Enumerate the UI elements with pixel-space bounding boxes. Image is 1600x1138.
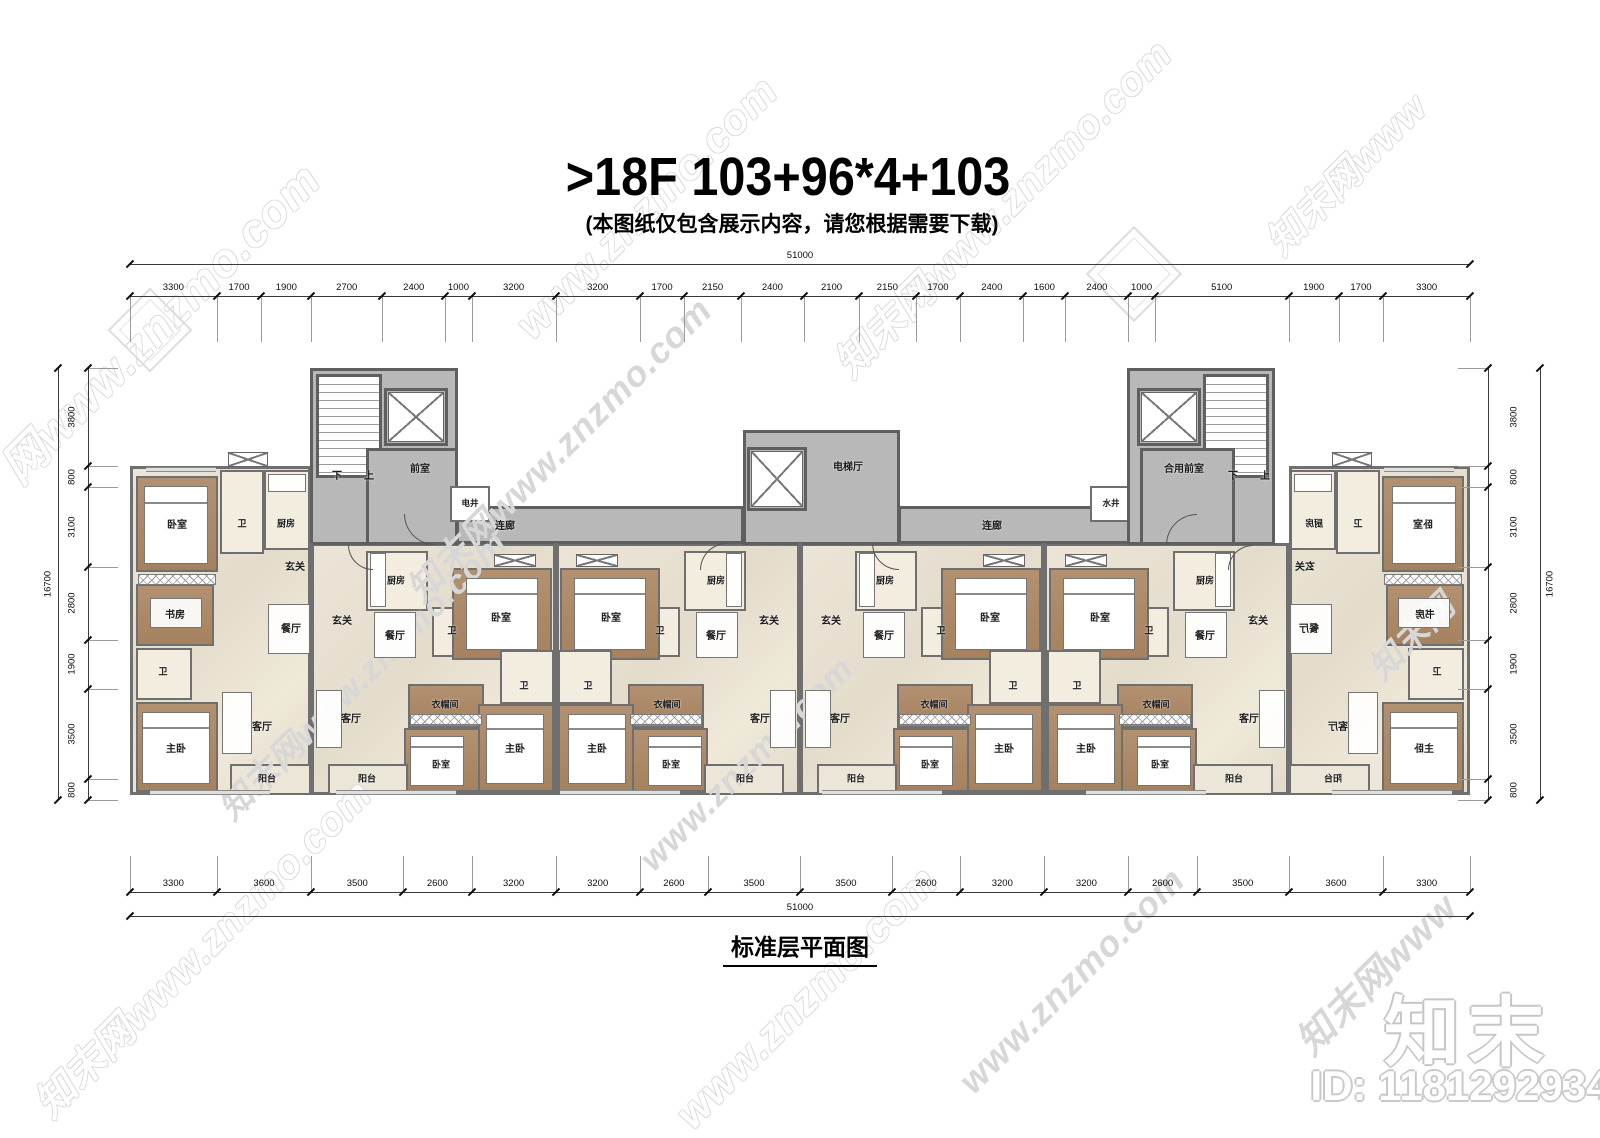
watermark-text: 知末网www.znzmo.com — [19, 764, 383, 1128]
dim-value: 2600 — [1152, 878, 1173, 889]
room-label: 卫 — [1008, 682, 1017, 691]
furniture-symbol — [770, 690, 796, 748]
dim-extension — [800, 856, 801, 892]
wardrobe-symbol — [1119, 714, 1191, 725]
room-label: 阳台 — [258, 775, 276, 784]
dim-total-value: 51000 — [787, 902, 813, 913]
room-label: 主卧 — [166, 745, 186, 755]
dim-value: 3200 — [587, 282, 608, 293]
dim-value: 2150 — [702, 282, 723, 293]
room-label: 上 — [364, 472, 374, 482]
dim-extension — [217, 296, 218, 342]
bath — [220, 470, 264, 554]
dim-line — [88, 368, 89, 800]
bath — [1047, 650, 1101, 704]
room-label: 客厅 — [252, 723, 272, 733]
room-label: 客厅 — [830, 715, 850, 725]
dim-value: 2800 — [67, 593, 78, 614]
dim-tick — [1466, 888, 1475, 897]
room-label: 卧室 — [1413, 521, 1433, 531]
dim-extension — [1470, 296, 1471, 342]
bath — [989, 650, 1043, 704]
room-label: 卫 — [1432, 668, 1441, 677]
dim-extension — [960, 296, 961, 342]
dim-tick — [1536, 796, 1545, 805]
dim-tick — [1466, 260, 1475, 269]
dim-extension — [217, 856, 218, 892]
dim-value: 3100 — [67, 517, 78, 538]
room-label: 卧室 — [921, 761, 939, 770]
room-label: 水井 — [1102, 499, 1119, 508]
dim-extension — [556, 296, 557, 342]
room-label: 衣帽间 — [1142, 701, 1169, 710]
dim-extension — [916, 296, 917, 342]
page-subtitle: (本图纸仅包含展示内容，请您根据需要下载) — [586, 208, 999, 238]
dim-extension — [1458, 800, 1488, 801]
dim-value: 2600 — [916, 878, 937, 889]
elevator-or-shaft-symbol — [1141, 392, 1197, 442]
dim-value: 2400 — [762, 282, 783, 293]
dim-value: 1700 — [1350, 282, 1371, 293]
dim-value: 3300 — [163, 878, 184, 889]
window-symbol — [150, 790, 270, 795]
dim-value: 3600 — [253, 878, 274, 889]
dim-extension — [382, 296, 383, 342]
room-label: 玄关 — [1295, 563, 1315, 573]
dim-extension — [1470, 856, 1471, 892]
page-title: >18F 103+96*4+103 — [566, 146, 1011, 208]
room-label: 卫 — [1353, 520, 1362, 529]
room-label: 卧室 — [432, 761, 450, 770]
window-symbol — [146, 467, 216, 472]
dim-total-value: 16700 — [43, 571, 54, 597]
elevator-or-shaft-symbol — [751, 451, 803, 507]
room-label: 下 — [1228, 472, 1238, 482]
room-label: 卫 — [447, 627, 456, 636]
dim-total-line — [58, 368, 59, 800]
room-label: 卫 — [583, 682, 592, 691]
dim-value: 800 — [67, 469, 78, 485]
room-label: 主卧 — [994, 745, 1014, 755]
furniture-symbol — [1259, 690, 1285, 748]
dim-value: 2150 — [877, 282, 898, 293]
dim-value: 1900 — [1509, 654, 1520, 675]
dim-extension — [1383, 296, 1384, 342]
bath — [1336, 470, 1380, 554]
dim-value: 3300 — [163, 282, 184, 293]
dim-value: 3100 — [1509, 517, 1520, 538]
dim-value: 1600 — [1034, 282, 1055, 293]
dim-value: 2800 — [1509, 593, 1520, 614]
dim-value: 3200 — [1076, 878, 1097, 889]
window-symbol — [1332, 790, 1452, 795]
room-label: 下 — [332, 472, 342, 482]
dim-extension — [1458, 689, 1488, 690]
dim-extension — [859, 296, 860, 342]
room-label: 衣帽间 — [431, 701, 458, 710]
dim-value: 800 — [67, 782, 78, 798]
room-label: 阳台 — [358, 775, 376, 784]
dim-value: 2400 — [981, 282, 1002, 293]
room-label: 卧室 — [167, 521, 187, 531]
room-label: 玄关 — [821, 617, 841, 627]
elevator-or-shaft-symbol — [576, 554, 618, 567]
dim-extension — [1383, 856, 1384, 892]
dim-extension — [88, 466, 118, 467]
room-label: 卧室 — [1151, 761, 1169, 770]
dim-extension — [1128, 296, 1129, 342]
dim-value: 3200 — [587, 878, 608, 889]
room-label: 厨房 — [876, 577, 894, 586]
dim-value: 3200 — [503, 282, 524, 293]
dim-value: 1700 — [927, 282, 948, 293]
dim-extension — [88, 779, 118, 780]
room-label: 厨房 — [1196, 577, 1214, 586]
plan-caption: 标准层平面图 — [723, 928, 877, 967]
dim-extension — [472, 856, 473, 892]
dim-value: 3500 — [835, 878, 856, 889]
furniture-symbol — [222, 692, 252, 754]
room-label: 电梯厅 — [833, 463, 863, 473]
furniture-symbol — [316, 690, 342, 748]
room-label: 玄关 — [1248, 617, 1268, 627]
bath — [500, 650, 554, 704]
room-label: 餐厅 — [1299, 625, 1319, 635]
dim-extension — [1155, 296, 1156, 342]
window-symbol — [822, 790, 942, 795]
room-label: 玄关 — [332, 617, 352, 627]
room-label: 厨房 — [707, 577, 725, 586]
furniture-symbol — [1294, 474, 1332, 492]
dim-extension — [88, 487, 118, 488]
room-label: 主卧 — [587, 745, 607, 755]
watermark-text: www.znzmo.com — [950, 859, 1193, 1102]
dim-total-value: 16700 — [1545, 571, 1556, 597]
dim-extension — [960, 856, 961, 892]
dim-value: 1900 — [67, 654, 78, 675]
room-label: 上 — [1260, 472, 1270, 482]
elevator-or-shaft-symbol — [494, 554, 536, 567]
furniture-symbol — [1348, 692, 1378, 754]
dim-value: 3800 — [67, 407, 78, 428]
dim-extension — [1128, 856, 1129, 892]
drawing-id-label: ID: 1181292934 — [1311, 1062, 1600, 1110]
dim-value: 2100 — [821, 282, 842, 293]
room-label: 合用前室 — [1164, 465, 1204, 475]
dim-value: 2700 — [336, 282, 357, 293]
room-label: 衣帽间 — [653, 701, 680, 710]
room-label: 客厅 — [1328, 723, 1348, 733]
room-label: 阳台 — [1225, 775, 1243, 784]
room-label: 卧室 — [491, 614, 511, 624]
room-label: 连廊 — [982, 522, 1002, 532]
window-symbol — [1384, 467, 1454, 472]
dim-value: 3500 — [347, 878, 368, 889]
dim-extension — [88, 640, 118, 641]
dim-extension — [1458, 640, 1488, 641]
dim-extension — [130, 856, 131, 892]
dim-extension — [445, 296, 446, 342]
dim-value: 3300 — [1416, 282, 1437, 293]
dim-value: 800 — [1509, 782, 1520, 798]
party-wall — [798, 543, 802, 795]
dim-value: 3200 — [503, 878, 524, 889]
watermark-logo — [1086, 226, 1182, 322]
room-label: 书房 — [165, 611, 185, 621]
room-label: 阳台 — [847, 775, 865, 784]
dim-extension — [1065, 296, 1066, 342]
wardrobe-symbol — [138, 574, 216, 585]
dim-value: 2600 — [427, 878, 448, 889]
furniture-symbol — [805, 690, 831, 748]
dim-extension — [88, 368, 118, 369]
dim-value: 3500 — [743, 878, 764, 889]
room-label: 阳台 — [736, 775, 754, 784]
furniture-symbol — [859, 553, 875, 607]
dim-extension — [1289, 296, 1290, 342]
furniture-symbol — [726, 553, 742, 607]
watermark-text: www.znzmo.com — [666, 857, 947, 1138]
dim-extension — [130, 296, 131, 342]
room-label: 卫 — [237, 520, 246, 529]
room-label: 前室 — [410, 465, 430, 475]
room-label: 阳台 — [1324, 775, 1342, 784]
room-label: 卧室 — [601, 614, 621, 624]
dim-extension — [88, 567, 118, 568]
page-root: { "title": { "main": ">18F 103+96*4+103"… — [0, 0, 1600, 1130]
wardrobe-symbol — [1384, 574, 1462, 585]
party-wall — [554, 543, 558, 795]
dim-value: 3800 — [1509, 407, 1520, 428]
dim-extension — [741, 296, 742, 342]
dim-total-line — [130, 264, 1470, 265]
wardrobe-symbol — [899, 714, 971, 725]
dim-value: 5100 — [1211, 282, 1232, 293]
room-label: 餐厅 — [281, 625, 301, 635]
dim-extension — [88, 689, 118, 690]
dim-value: 2600 — [663, 878, 684, 889]
dim-tick — [54, 796, 63, 805]
dim-total-value: 51000 — [787, 250, 813, 261]
room-label: 主卧 — [1414, 745, 1434, 755]
room-label: 玄关 — [285, 563, 305, 573]
dim-value: 3500 — [1232, 878, 1253, 889]
dim-extension — [640, 296, 641, 342]
room-label: 卧室 — [980, 614, 1000, 624]
room-label: 主卧 — [1076, 745, 1096, 755]
window-symbol — [336, 790, 456, 795]
dim-total-line — [130, 916, 1470, 917]
dim-line — [1488, 368, 1489, 800]
wardrobe-symbol — [410, 714, 482, 725]
room-label: 电井 — [461, 499, 478, 508]
wardrobe-symbol — [630, 714, 702, 725]
dim-value: 1700 — [651, 282, 672, 293]
dim-extension — [640, 856, 641, 892]
dim-value: 1000 — [1131, 282, 1152, 293]
room-label: 衣帽间 — [920, 701, 947, 710]
room-label: 书房 — [1415, 611, 1435, 621]
room-label: 卫 — [655, 627, 664, 636]
elevator-or-shaft-symbol — [983, 554, 1025, 567]
dim-extension — [1339, 296, 1340, 342]
dim-extension — [556, 856, 557, 892]
room-label: 连廊 — [495, 522, 515, 532]
room-label: 卫 — [1072, 682, 1081, 691]
elevator-or-shaft-symbol — [1065, 554, 1107, 567]
dim-value: 2400 — [1086, 282, 1107, 293]
party-wall — [1042, 543, 1046, 795]
party-wall — [1287, 543, 1291, 795]
room-label: 卫 — [936, 627, 945, 636]
dim-extension — [892, 856, 893, 892]
room-label: 卧室 — [1090, 614, 1110, 624]
dim-extension — [1289, 856, 1290, 892]
elevator-or-shaft-symbol — [388, 392, 444, 442]
dim-extension — [1197, 856, 1198, 892]
dim-value: 3300 — [1416, 878, 1437, 889]
bath — [558, 650, 612, 704]
dim-value: 1000 — [448, 282, 469, 293]
dim-value: 3200 — [992, 878, 1013, 889]
room-label: 餐厅 — [706, 632, 726, 642]
dim-extension — [1458, 368, 1488, 369]
furniture-symbol — [268, 474, 306, 492]
room-label: 卫 — [1144, 627, 1153, 636]
dim-value: 1700 — [228, 282, 249, 293]
elevator-or-shaft-symbol — [228, 452, 268, 467]
dim-extension — [1458, 487, 1488, 488]
dim-extension — [311, 856, 312, 892]
dim-value: 3500 — [1509, 723, 1520, 744]
dim-extension — [1044, 856, 1045, 892]
dim-extension — [1023, 296, 1024, 342]
room-label: 玄关 — [759, 617, 779, 627]
dim-tick — [1484, 796, 1493, 805]
room-label: 厨房 — [387, 577, 405, 586]
elevator-or-shaft-symbol — [1332, 452, 1372, 467]
dim-extension — [261, 296, 262, 342]
room-label: 餐厅 — [874, 632, 894, 642]
room-label: 主卧 — [505, 745, 525, 755]
room-label: 卫 — [519, 682, 528, 691]
room-label: 客厅 — [341, 715, 361, 725]
window-symbol — [560, 790, 680, 795]
dim-extension — [472, 296, 473, 342]
watermark-text: 知末网www — [1251, 79, 1437, 265]
room-label: 厨房 — [1305, 520, 1323, 529]
dim-extension — [708, 856, 709, 892]
window-symbol — [1086, 790, 1206, 795]
dim-value: 800 — [1509, 469, 1520, 485]
room-label: 餐厅 — [1195, 632, 1215, 642]
dim-extension — [1458, 567, 1488, 568]
dim-extension — [804, 296, 805, 342]
room-label: 餐厅 — [385, 632, 405, 642]
dim-extension — [403, 856, 404, 892]
room-label: 客厅 — [1239, 715, 1259, 725]
dim-value: 1900 — [276, 282, 297, 293]
dim-value: 3600 — [1325, 878, 1346, 889]
room-label: 卫 — [158, 668, 167, 677]
dim-value: 1900 — [1303, 282, 1324, 293]
dim-value: 3500 — [67, 723, 78, 744]
room-label: 卧室 — [662, 761, 680, 770]
dim-extension — [684, 296, 685, 342]
room-label: 客厅 — [750, 715, 770, 725]
room-label: 厨房 — [277, 520, 295, 529]
dim-value: 2400 — [403, 282, 424, 293]
dim-extension — [88, 800, 118, 801]
dim-tick — [1466, 912, 1475, 921]
dim-total-line — [1540, 368, 1541, 800]
dim-extension — [311, 296, 312, 342]
